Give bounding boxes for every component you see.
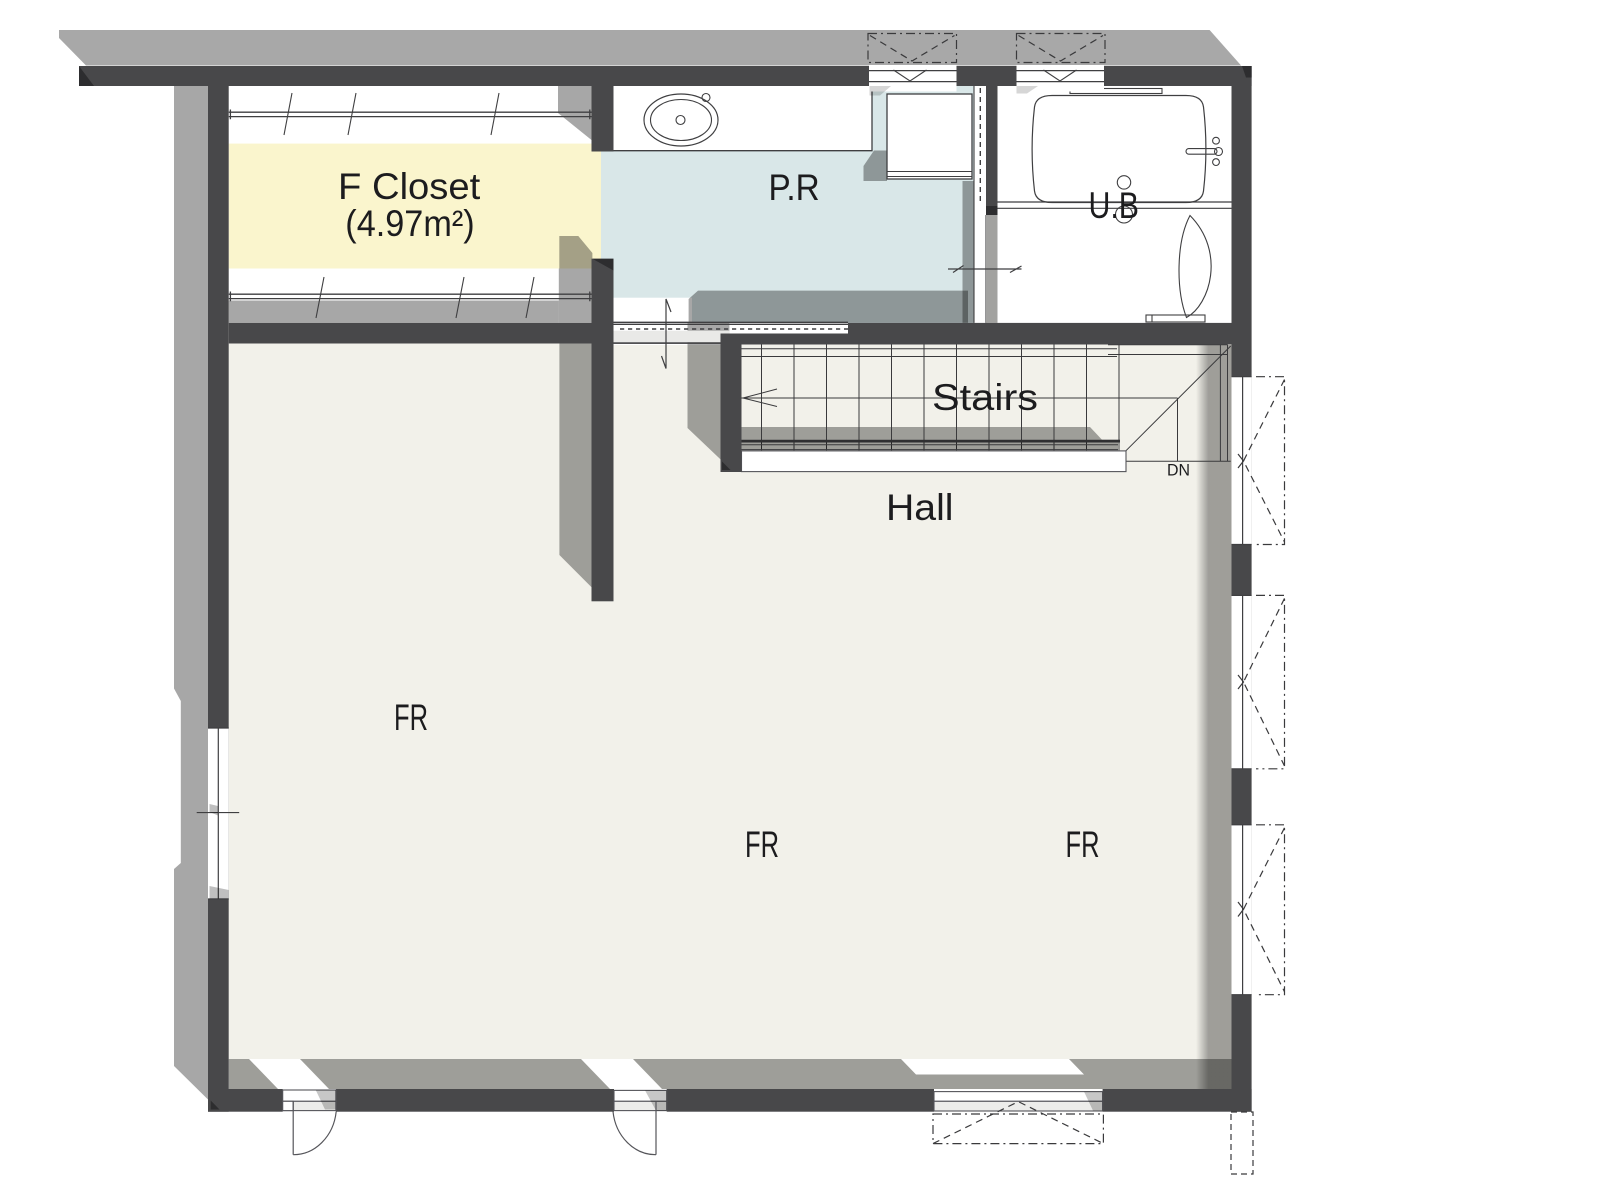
- svg-text:(4.97m²): (4.97m²): [345, 203, 474, 244]
- svg-text:Hall: Hall: [886, 487, 954, 528]
- svg-text:Stairs: Stairs: [932, 377, 1038, 418]
- svg-text:P.R: P.R: [769, 167, 820, 208]
- svg-text:U.B: U.B: [1089, 185, 1140, 226]
- svg-text:DN: DN: [1167, 462, 1190, 480]
- svg-text:F Closet: F Closet: [338, 166, 481, 207]
- svg-text:FR: FR: [745, 824, 779, 865]
- svg-text:FR: FR: [1066, 824, 1100, 865]
- svg-text:FR: FR: [394, 697, 428, 738]
